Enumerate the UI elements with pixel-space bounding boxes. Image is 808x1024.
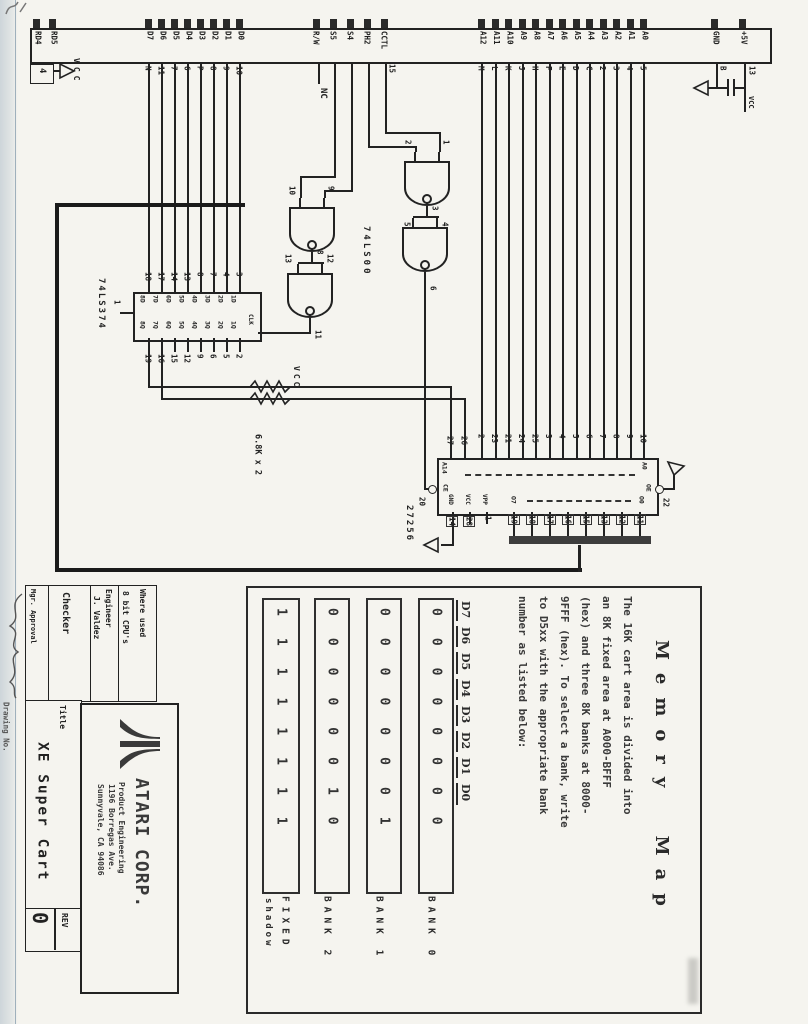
bank1-label: BANK 1	[374, 896, 384, 960]
pin-number: 10	[639, 434, 647, 443]
pin-number: 12	[616, 514, 628, 525]
pin-function: 4D	[191, 295, 198, 303]
contact-pad	[613, 19, 620, 28]
wire-pin-number: L	[491, 66, 499, 71]
rom-o0-label: O0	[638, 496, 645, 504]
bank0-label: BANK 0	[426, 896, 436, 960]
wire-pin-number: 2	[599, 66, 607, 71]
company-name: ATARI CORP.	[132, 778, 150, 908]
contact-pad	[559, 19, 566, 28]
rev-label: REV	[60, 913, 68, 927]
wire	[589, 62, 591, 458]
pin-number: 21	[504, 434, 512, 443]
wire-cctl	[385, 132, 441, 134]
wire-pin-number: 9	[222, 66, 230, 71]
contact-pad	[330, 19, 337, 28]
paragraph-line: number as listed below:	[517, 596, 528, 748]
bank-wire-2	[161, 352, 163, 400]
gate-pin: 12	[326, 254, 334, 263]
wire-pin-number: 11	[157, 66, 165, 75]
wire-cctl	[439, 132, 441, 152]
scanner-edge-line	[15, 0, 16, 1024]
pin-function: 3Q	[204, 321, 211, 329]
wire	[226, 62, 228, 292]
wire	[161, 338, 163, 352]
wire-s4	[351, 62, 353, 190]
gate-pin: 1	[442, 140, 450, 145]
rom-vpp-label: VPP	[481, 494, 487, 505]
pin-label: A10	[506, 31, 514, 45]
pin-number: 12	[183, 354, 191, 363]
wire-pin-number: 5	[639, 66, 647, 71]
contact-pad	[627, 19, 634, 28]
clk-wire	[258, 332, 311, 334]
data-bus	[57, 203, 245, 207]
pin-function: 2D	[217, 295, 224, 303]
contact-pad	[223, 19, 230, 28]
wire-pin-number: N	[144, 66, 152, 71]
contact-pad	[586, 19, 593, 28]
gnd-wire-pin: B	[719, 66, 727, 71]
ground-arrow-icon	[666, 460, 690, 476]
wire-pin-number: 3	[612, 66, 620, 71]
contact-pad	[145, 19, 152, 28]
fixed-label: FIXED	[280, 896, 290, 950]
contact-pad	[364, 19, 371, 28]
pin-number: 24	[518, 434, 526, 443]
contact-pad	[519, 19, 526, 28]
pin-number: 18	[144, 272, 152, 281]
left-pin-box	[30, 64, 54, 84]
bank2-bits-box: 00000010	[314, 598, 350, 894]
pin-label: A0	[641, 31, 649, 40]
paragraph-line: to D5xx with the appropriate bank	[538, 596, 549, 815]
gate-pin: 2	[404, 140, 412, 145]
nand-gate	[399, 152, 455, 214]
wire-rw	[318, 62, 320, 84]
pin-number: 18	[526, 514, 538, 525]
pin-function: 8D	[139, 295, 146, 303]
contact-pad	[236, 19, 243, 28]
pin-label: A9	[520, 31, 528, 40]
gate-junction	[426, 212, 428, 218]
vcc-left-label: VCC	[72, 58, 80, 84]
wire	[148, 62, 150, 292]
paragraph-line: 9FFF (hex). To select a bank, write	[559, 596, 570, 828]
drawing-title: XE Super Cart	[35, 742, 50, 882]
bit-header: D0	[456, 783, 472, 804]
paragraph-line: an 8K fixed area at A000-BFFF	[601, 596, 612, 788]
where-used-label: Where used	[138, 589, 146, 637]
latch-oc-stub	[120, 312, 133, 314]
pin-label: PH2	[363, 31, 371, 45]
rev-value: 0	[30, 912, 50, 924]
pin-number: 14	[170, 272, 178, 281]
bit-header: D6	[456, 626, 472, 647]
contact-pad	[381, 19, 388, 28]
wire-pin-number: 7	[170, 66, 178, 71]
pin-function: 1D	[230, 295, 237, 303]
contact-pad	[184, 19, 191, 28]
wire-pin-number: 4	[626, 66, 634, 71]
gate-pin: 3	[431, 206, 439, 211]
pin-label: D3	[198, 31, 206, 40]
wire	[213, 62, 215, 292]
company-address1: 1196 Borregas Ave.	[107, 784, 115, 871]
paragraph-line: (hex) and three 8K banks at 8000-	[580, 596, 591, 815]
contact-pad	[347, 19, 354, 28]
rom-data-ellipsis	[527, 500, 631, 502]
wire	[522, 62, 524, 458]
wire	[535, 62, 537, 458]
pin-number: 9	[196, 354, 204, 359]
pin-function: 3D	[204, 295, 211, 303]
gate-pin: 10	[288, 186, 296, 195]
contact-pad	[478, 19, 485, 28]
pullup-value-label: 6.8K x 2	[253, 434, 262, 475]
p5v-wire-pin: 13	[748, 66, 756, 75]
pin-label: D6	[159, 31, 167, 40]
pin-number: 15	[580, 514, 592, 525]
wire	[239, 338, 241, 352]
pin-number: 15	[170, 354, 178, 363]
wire-pin-number: M	[477, 66, 485, 71]
pullup-vcc-label: VCC	[292, 366, 300, 389]
mgr-approval-label: Mgr. Approval	[29, 589, 36, 644]
wire-pin-number: K	[504, 66, 512, 71]
wire-pin-number: E	[558, 66, 566, 71]
rom-addr-ellipsis	[465, 474, 635, 476]
pin-number: 8	[612, 434, 620, 439]
rom-oe-pin: 22	[662, 498, 670, 507]
wire	[616, 62, 618, 458]
cartridge-edge-connector	[30, 28, 772, 64]
bank2-label: BANK 2	[322, 896, 332, 960]
pin-label: CCTL	[380, 31, 388, 49]
wire-pin-number: D	[572, 66, 580, 71]
contact-pad	[171, 19, 178, 28]
bit-header: D1	[456, 757, 472, 778]
pin-number: 4	[222, 272, 230, 277]
pin-label: RD5	[50, 31, 58, 45]
wire-cctl	[385, 62, 387, 132]
wire	[643, 62, 645, 458]
contact-pad	[33, 19, 40, 28]
pin-function: 6D	[165, 295, 172, 303]
pin-number: 11	[634, 514, 646, 525]
pin-number: 2	[235, 354, 243, 359]
contact-pad	[49, 19, 56, 28]
wire-pin-number: 6	[183, 66, 191, 71]
nand-gate	[397, 218, 453, 280]
wire	[239, 62, 241, 292]
pin-function: 7D	[152, 295, 159, 303]
wire	[213, 338, 215, 352]
pin-label: R/W	[312, 31, 320, 45]
ground-arrow-icon	[694, 81, 718, 95]
bank-wire-2	[161, 398, 466, 400]
company-address2: Sunnyvale, CA 94086	[96, 784, 104, 876]
pin-function: 1Q	[230, 321, 237, 329]
wire-s5	[334, 62, 336, 176]
data-bus	[55, 568, 582, 572]
pin-number: 25	[531, 434, 539, 443]
contact-pad	[210, 19, 217, 28]
pin-label: A5	[574, 31, 582, 40]
contact-pad	[532, 19, 539, 28]
data-bus	[55, 203, 59, 572]
ground-arrow-icon	[54, 64, 74, 78]
company-dept: Product Engineering	[117, 782, 125, 874]
wire-pin-number: 8	[209, 66, 217, 71]
bit-header: D5	[456, 652, 472, 673]
cctl-wire-pin: 15	[388, 64, 396, 73]
left-pin-label: 4	[37, 68, 46, 73]
contact-pad	[505, 19, 512, 28]
nc-label: NC	[318, 88, 327, 99]
contact-pad	[640, 19, 647, 28]
pin-number: 27	[446, 436, 454, 445]
gate-pin: 9	[327, 186, 335, 191]
eprom-27256	[437, 458, 659, 516]
bank-wire-2	[464, 398, 466, 460]
latch-clk-label: CLK	[247, 314, 253, 325]
contact-pad	[739, 19, 746, 28]
wire-pin-number: H	[531, 66, 539, 71]
pin-number: 28	[463, 516, 475, 527]
engineer-value: J. Valdez	[92, 596, 100, 639]
wire	[161, 62, 163, 292]
pin-label: A8	[533, 31, 541, 40]
pin-label: A1	[628, 31, 636, 40]
pin-number: 8	[196, 272, 204, 277]
pin-label: +5V	[740, 31, 748, 45]
contact-pad	[492, 19, 499, 28]
title-box	[25, 700, 82, 910]
pin-label: S5	[329, 31, 337, 40]
data-bus	[578, 545, 581, 572]
fixed-bits-box: 11111111	[262, 598, 300, 894]
wire	[549, 62, 551, 458]
signature	[2, 590, 26, 700]
pin-number: 9	[626, 434, 634, 439]
contact-pad	[600, 19, 607, 28]
wire-pin-number: F	[545, 66, 553, 71]
pin-number: 13	[183, 272, 191, 281]
engineer-label: Engineer	[104, 589, 112, 628]
pin-label: A4	[587, 31, 595, 40]
pin-number: 7	[599, 434, 607, 439]
latch-part-label: 74LS374	[96, 278, 105, 330]
rom-a14-label: A14	[441, 462, 448, 474]
pin-label: A6	[560, 31, 568, 40]
contact-pad	[197, 19, 204, 28]
nand-gate	[284, 198, 340, 260]
bank2-bits: 00000010	[326, 600, 339, 892]
rom-vpp-pin: 1	[484, 516, 492, 521]
pin-label: S4	[346, 31, 354, 40]
contact-pad	[573, 19, 580, 28]
pin-label: D1	[224, 31, 232, 40]
pin-function: 5Q	[178, 321, 185, 329]
fixed-sublabel: shadow	[263, 898, 272, 949]
pin-number: 7	[209, 272, 217, 277]
pin-number: 26	[460, 436, 468, 445]
wire	[603, 62, 605, 458]
rom-data-bus-bar	[509, 536, 651, 544]
pin-number: 16	[562, 514, 574, 525]
pin-number: 6	[209, 354, 217, 359]
gate-junction	[311, 258, 313, 264]
gate-pin: 5	[403, 222, 411, 227]
wire	[630, 62, 632, 458]
wire	[508, 62, 510, 458]
rom-o7-label: O7	[510, 496, 517, 504]
resistor-icon	[250, 378, 294, 406]
wire	[200, 62, 202, 292]
bank0-bits-box: 00000000	[418, 598, 454, 894]
ground-arrow-icon	[424, 538, 444, 552]
gate-pin: 6	[429, 286, 437, 291]
nand-gate	[282, 264, 338, 326]
pin-number: 13	[598, 514, 610, 525]
contact-pad	[546, 19, 553, 28]
contact-pad	[313, 19, 320, 28]
pin-number: 3	[545, 434, 553, 439]
pin-function: 4Q	[191, 321, 198, 329]
pin-function: 7Q	[152, 321, 159, 329]
wire-pin-number: J	[518, 66, 526, 71]
vcc-right-label: VCC	[747, 96, 754, 109]
rev-divider	[54, 908, 56, 950]
bank1-bits: 00000001	[378, 600, 391, 892]
gates-part-label: 74LS00	[361, 226, 370, 277]
wire-pin-number: P	[196, 66, 204, 71]
pin-label: D7	[146, 31, 154, 40]
capacitor-lead	[735, 87, 745, 89]
rom-gnd-wire	[452, 524, 454, 546]
drawing-no-label: Drawing No.	[2, 702, 10, 752]
rom-oe-label: OE	[645, 484, 652, 492]
pin-label: A3	[601, 31, 609, 40]
pin-number: 5	[222, 354, 230, 359]
ce-bubble	[428, 485, 437, 494]
pin-label: D0	[237, 31, 245, 40]
wire	[174, 62, 176, 292]
pin-label: RD4	[34, 31, 42, 45]
pin-function: 2Q	[217, 321, 224, 329]
pin-label: A11	[493, 31, 501, 45]
pin-label: D2	[211, 31, 219, 40]
wire-pin-number: C	[585, 66, 593, 71]
rom-vcc-label: VCC	[464, 494, 470, 505]
scanned-schematic-page: { "connector": { "rd_pins": ["RD4","RD5"…	[0, 0, 808, 1024]
bit-header: D7	[456, 600, 472, 621]
title-label: Title	[58, 705, 66, 729]
wire-ph2	[368, 62, 370, 146]
wire	[187, 62, 189, 292]
rom-ce-label: CE	[442, 484, 449, 492]
gate-pin: 4	[441, 222, 449, 227]
oe-wire	[673, 474, 675, 490]
gate-pin: 13	[284, 254, 292, 263]
wire-s5	[300, 176, 302, 198]
wire-s5	[300, 176, 336, 178]
ce-wire	[424, 280, 426, 490]
rom-ce-pin: 20	[418, 497, 426, 506]
bank-wire-1	[148, 352, 150, 388]
pin-label: GND	[712, 31, 720, 45]
where-used-value: 8 bit CPU's	[121, 591, 129, 644]
paragraph-line: The 16K cart area is divided into	[622, 596, 633, 815]
wire	[481, 62, 483, 458]
bank1-bits-box: 00000001	[366, 598, 402, 894]
eprom-part-label: 27256	[404, 505, 413, 542]
wire	[226, 338, 228, 352]
wire	[495, 62, 497, 458]
wire-pin-number: 10	[235, 66, 243, 75]
wire	[174, 338, 176, 352]
capacitor-plate	[727, 79, 729, 96]
pin-number: 17	[157, 272, 165, 281]
pin-label: D5	[172, 31, 180, 40]
pin-label: A2	[614, 31, 622, 40]
memory-map-title: Memory Map	[652, 640, 670, 919]
bit-header: D3	[456, 705, 472, 726]
bit-header-column: D7D6D5D4D3D2D1D0	[456, 600, 472, 805]
atari-logo	[106, 714, 166, 774]
pin-number: 17	[544, 514, 556, 525]
rom-a0-label: A0	[641, 462, 648, 470]
pin-label: A12	[479, 31, 487, 45]
pin-function: 8Q	[139, 321, 146, 329]
contact-pad	[711, 19, 718, 28]
pin-number: 3	[235, 272, 243, 277]
pin-function: 6Q	[165, 321, 172, 329]
wire	[200, 338, 202, 352]
wire	[562, 62, 564, 458]
fixed-bits: 11111111	[275, 600, 288, 892]
wire	[187, 338, 189, 352]
pin-number: 6	[585, 434, 593, 439]
pin-number: 5	[572, 434, 580, 439]
bank0-bits: 00000000	[430, 600, 443, 892]
wire	[576, 62, 578, 458]
pin-label: D4	[185, 31, 193, 40]
pin-number: 23	[491, 434, 499, 443]
pin-label: A7	[547, 31, 555, 40]
wire	[148, 338, 150, 352]
pin-number: 19	[508, 514, 520, 525]
contact-pad	[158, 19, 165, 28]
rom-gnd-label: GND	[447, 494, 453, 505]
checker-label: Checker	[60, 592, 70, 634]
pin-number: 2	[477, 434, 485, 439]
latch-oc-pin: 1	[113, 300, 121, 305]
gate-pin: 11	[314, 330, 322, 339]
gate-pin: 8	[316, 250, 324, 255]
wire-s4	[324, 190, 326, 198]
scan-mark	[4, 0, 30, 16]
wire-ph2	[368, 146, 417, 148]
bit-header: D2	[456, 731, 472, 752]
pin-function: 5D	[178, 295, 185, 303]
bit-header: D4	[456, 679, 472, 700]
pin-number: 4	[558, 434, 566, 439]
